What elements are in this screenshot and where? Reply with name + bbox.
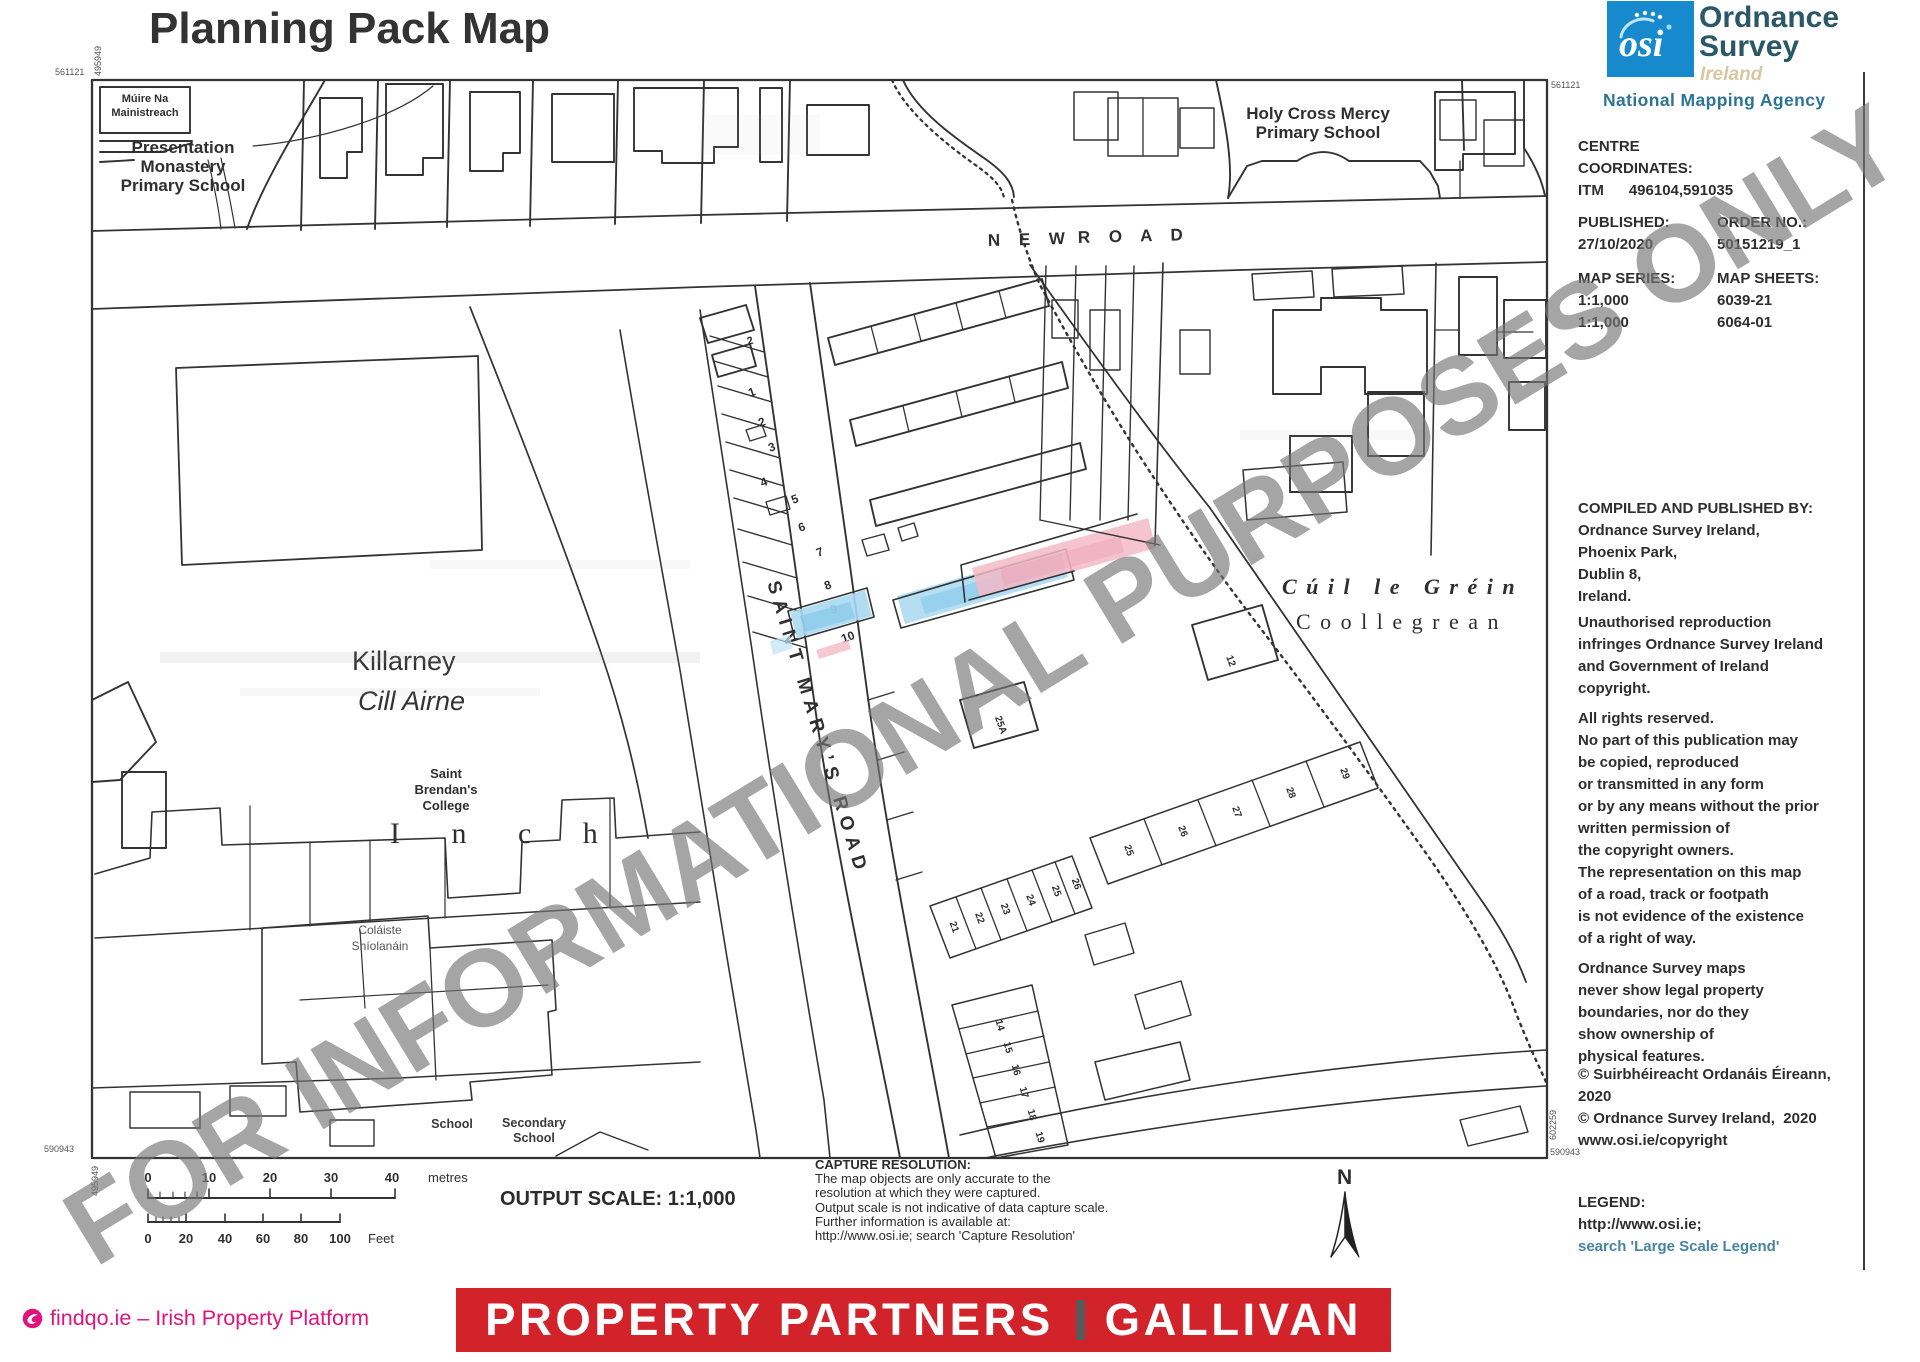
svg-text:Múire Na: Múire Na xyxy=(122,93,169,105)
svg-text:590943: 590943 xyxy=(44,1144,74,1154)
svg-text:Feet: Feet xyxy=(368,1231,394,1246)
svg-text:2: 2 xyxy=(746,335,755,348)
svg-text:23: 23 xyxy=(998,902,1012,917)
svg-text:0: 0 xyxy=(144,1170,151,1185)
svg-text:School: School xyxy=(431,1117,473,1131)
svg-text:Mainistreach: Mainistreach xyxy=(111,107,179,119)
svg-text:495949: 495949 xyxy=(93,46,103,76)
svg-text:10: 10 xyxy=(202,1170,216,1185)
svg-text:8: 8 xyxy=(822,577,833,593)
svg-text:4: 4 xyxy=(758,474,769,490)
svg-text:Holy Cross Mercy: Holy Cross Mercy xyxy=(1246,104,1390,123)
svg-text:40: 40 xyxy=(218,1231,232,1246)
svg-text:25: 25 xyxy=(1121,843,1135,858)
svg-text:561121: 561121 xyxy=(1551,80,1580,90)
svg-text:6: 6 xyxy=(796,519,807,535)
svg-text:0: 0 xyxy=(144,1231,151,1246)
svg-text:28: 28 xyxy=(1283,786,1297,801)
svg-text:osi: osi xyxy=(1619,23,1664,65)
svg-text:12: 12 xyxy=(1223,654,1237,669)
svg-text:20: 20 xyxy=(179,1231,193,1246)
svg-text:Coláiste: Coláiste xyxy=(358,923,402,937)
svg-text:27: 27 xyxy=(1229,805,1243,820)
svg-text:C ú i l l e G r é i n: C ú i l l e G r é i n xyxy=(1282,574,1517,599)
svg-text:24: 24 xyxy=(1023,893,1037,908)
svg-text:R O A D: R O A D xyxy=(1078,225,1190,247)
svg-text:14: 14 xyxy=(993,1019,1007,1033)
svg-text:25A: 25A xyxy=(992,715,1009,736)
svg-text:29: 29 xyxy=(1337,767,1351,782)
svg-text:80: 80 xyxy=(294,1231,308,1246)
svg-text:Monastery: Monastery xyxy=(140,157,226,176)
svg-text:602259: 602259 xyxy=(1548,1110,1558,1140)
svg-text:School: School xyxy=(513,1131,555,1145)
svg-text:20: 20 xyxy=(263,1170,277,1185)
svg-text:Primary School: Primary School xyxy=(1256,123,1381,142)
svg-text:561121: 561121 xyxy=(55,67,84,77)
svg-text:1: 1 xyxy=(746,384,757,400)
svg-text:16: 16 xyxy=(1009,1063,1023,1077)
svg-text:19: 19 xyxy=(1033,1131,1047,1145)
svg-text:metres: metres xyxy=(428,1170,468,1185)
svg-text:40: 40 xyxy=(385,1170,399,1185)
svg-text:25: 25 xyxy=(1049,884,1063,899)
svg-text:590943: 590943 xyxy=(1550,1147,1580,1157)
svg-text:495949: 495949 xyxy=(90,1166,100,1196)
svg-text:21: 21 xyxy=(947,920,961,935)
svg-text:7: 7 xyxy=(814,544,825,560)
svg-text:60: 60 xyxy=(256,1231,270,1246)
svg-text:Saint: Saint xyxy=(430,766,462,781)
svg-text:C o o l l e g r e a n: C o o l l e g r e a n xyxy=(1296,609,1501,634)
svg-text:17: 17 xyxy=(1017,1086,1031,1100)
svg-text:N: N xyxy=(1337,1166,1352,1189)
svg-text:Secondary: Secondary xyxy=(502,1116,566,1130)
svg-text:Brendan's: Brendan's xyxy=(414,782,477,797)
svg-text:30: 30 xyxy=(324,1170,338,1185)
svg-text:5: 5 xyxy=(789,491,800,507)
svg-text:N E W: N E W xyxy=(988,229,1073,250)
svg-text:3: 3 xyxy=(766,439,777,455)
svg-text:2: 2 xyxy=(756,414,767,430)
svg-text:26: 26 xyxy=(1069,877,1083,892)
svg-text:15: 15 xyxy=(1001,1041,1015,1055)
svg-text:College: College xyxy=(423,798,470,813)
svg-text:22: 22 xyxy=(972,911,986,926)
svg-text:Presentation: Presentation xyxy=(132,138,235,157)
svg-text:100: 100 xyxy=(329,1231,351,1246)
svg-text:26: 26 xyxy=(1175,824,1189,839)
svg-text:I n c h: I n c h xyxy=(390,817,620,850)
